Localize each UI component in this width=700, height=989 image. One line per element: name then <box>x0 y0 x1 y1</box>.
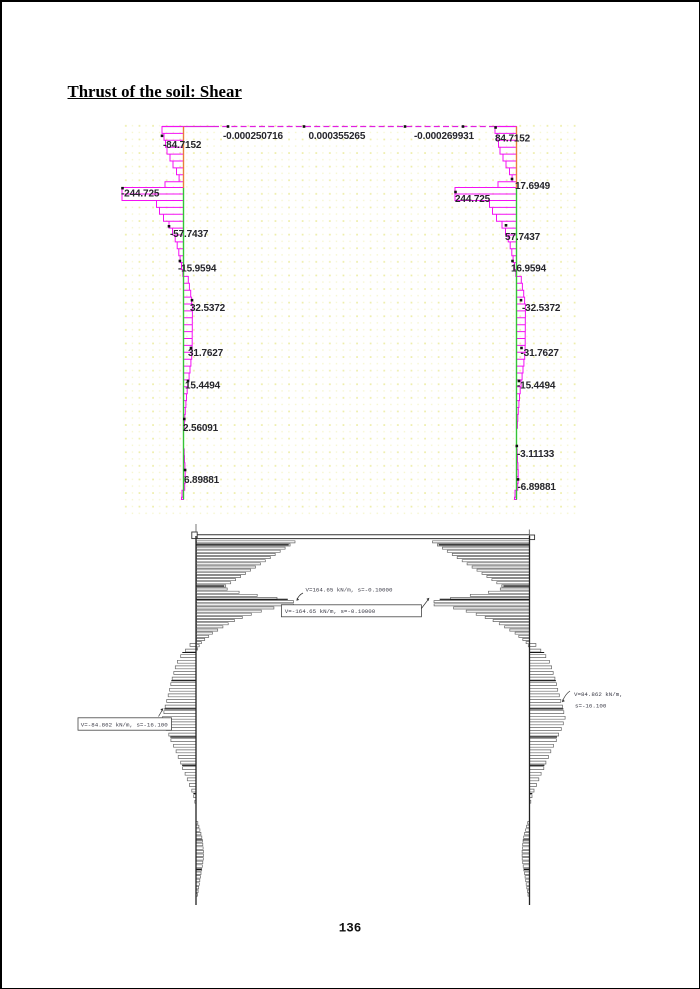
svg-text:136: 136 <box>339 922 362 936</box>
svg-text:244.725: 244.725 <box>455 194 491 205</box>
svg-text:V=-84.862 kN/m, s=-16.100: V=-84.862 kN/m, s=-16.100 <box>81 722 168 729</box>
svg-text:-57.7437: -57.7437 <box>170 229 209 240</box>
svg-text:-6.89881: -6.89881 <box>518 482 557 493</box>
svg-text:s=-16.100: s=-16.100 <box>575 703 607 710</box>
svg-text:-84.7152: -84.7152 <box>163 140 202 151</box>
svg-text:-31.7627: -31.7627 <box>521 348 560 359</box>
svg-text:57.7437: 57.7437 <box>505 232 541 243</box>
svg-text:16.9594: 16.9594 <box>511 264 547 275</box>
svg-text:17.6949: 17.6949 <box>515 181 551 192</box>
svg-text:-15.9594: -15.9594 <box>178 264 217 275</box>
svg-text:6.89881: 6.89881 <box>184 475 220 486</box>
svg-text:0.000355265: 0.000355265 <box>309 131 366 142</box>
svg-text:-244.725: -244.725 <box>121 189 160 200</box>
svg-text:32.5372: 32.5372 <box>190 303 226 314</box>
svg-text:-0.000269931: -0.000269931 <box>414 131 475 142</box>
svg-text:V=84.862 kN/m,: V=84.862 kN/m, <box>574 691 623 698</box>
svg-text:V=-164.65 kN/m, s=-0.10000: V=-164.65 kN/m, s=-0.10000 <box>285 608 376 615</box>
svg-text:2.56091: 2.56091 <box>183 423 219 434</box>
svg-text:84.7152: 84.7152 <box>495 134 531 145</box>
svg-text:15.4494: 15.4494 <box>185 381 221 392</box>
svg-text:-15.4494: -15.4494 <box>517 381 556 392</box>
svg-text:V=164.65 kN/m, s=-0.10000: V=164.65 kN/m, s=-0.10000 <box>306 587 393 594</box>
svg-text:31.7627: 31.7627 <box>188 348 224 359</box>
svg-text:-32.5372: -32.5372 <box>522 303 561 314</box>
svg-text:-3.11133: -3.11133 <box>517 449 555 460</box>
svg-text:-0.000250716: -0.000250716 <box>223 131 284 142</box>
